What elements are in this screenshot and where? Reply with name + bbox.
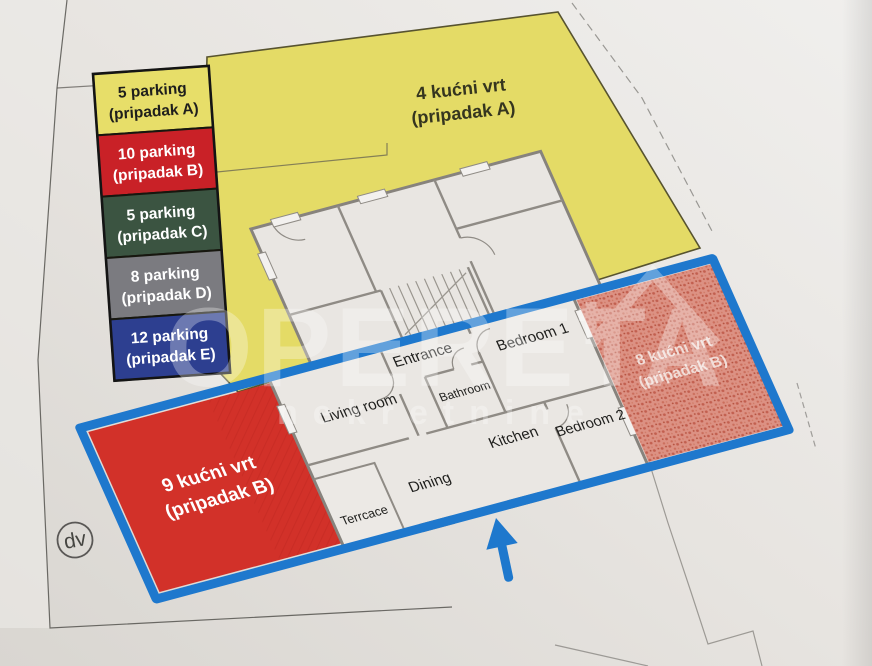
legend-item-c: 5 parking (pripadak C) (102, 189, 222, 258)
legend-item-a: 5 parking (pripadak A) (93, 66, 213, 135)
legend-item-b: 10 parking (pripadak B) (97, 127, 217, 196)
watermark: OPERETA nekretnine (165, 273, 726, 432)
dv-marker-label: dv (62, 527, 88, 554)
watermark-subtext: nekretnine (277, 394, 599, 432)
watermark-brand: OPERETA (165, 285, 726, 410)
site-plan-image: 4 kućni vrt (pripadak A) 5 parking (prip… (0, 0, 872, 666)
site-plan-canvas: 4 kućni vrt (pripadak A) 5 parking (prip… (0, 0, 872, 666)
page-edge-shade (842, 0, 872, 666)
